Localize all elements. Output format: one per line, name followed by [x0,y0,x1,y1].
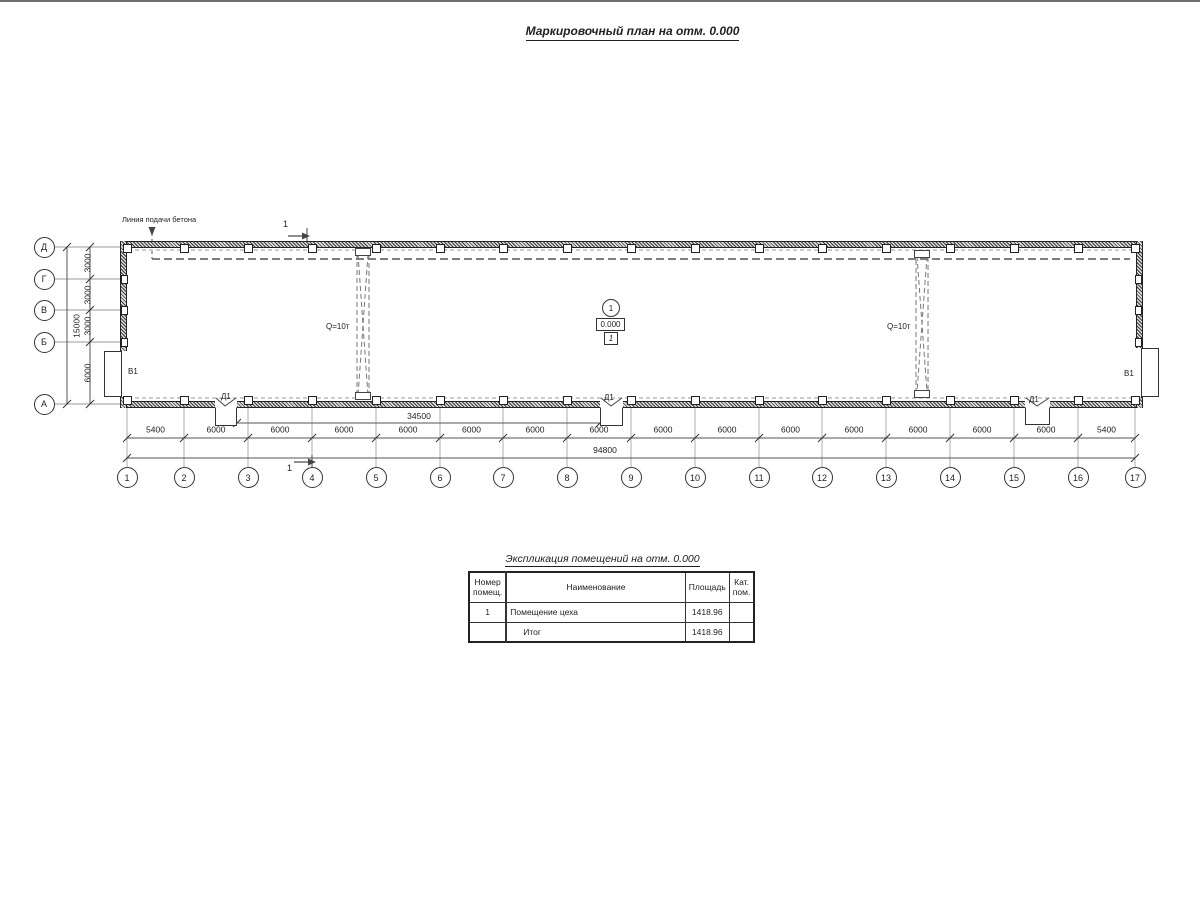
axis-bubble-Г: Г [34,269,55,290]
gate-label-right: В1 [1124,370,1134,379]
column-top [946,244,955,253]
schedule-cell-name: Помещение цеха [506,602,685,622]
dim-bottom-segment: 6000 [909,425,928,434]
dim-bottom-segment: 6000 [399,425,418,434]
axis-bubble-13: 13 [876,467,897,488]
column-top [499,244,508,253]
axis-bubble-17: 17 [1125,467,1146,488]
column-top [818,244,827,253]
column-right [1135,275,1142,284]
column-top [372,244,381,253]
column-left [121,338,128,347]
column-top [691,244,700,253]
column-bottom [180,396,189,405]
column-top [882,244,891,253]
column-top [436,244,445,253]
drawing-sheet: Маркировочный план на отм. 0.000 Линия п… [0,0,1200,900]
column-bottom [755,396,764,405]
axis-bubble-1: 1 [117,467,138,488]
dim-bottom-segment: 6000 [590,425,609,434]
room-elevation-box: 0.000 [596,318,625,331]
column-right [1135,306,1142,315]
schedule-total-row: Итог 1418.96 [469,622,754,642]
schedule-cell-category [729,602,754,622]
dim-bottom-segment: 6000 [207,425,226,434]
door-3 [1025,407,1050,425]
wall-left-seg [120,241,127,351]
dim-bottom-segment: 6000 [845,425,864,434]
column-bottom [372,396,381,405]
dim-bottom-segment: 6000 [271,425,290,434]
dim-bottom-segment: 5400 [1097,425,1116,434]
axis-bubble-5: 5 [366,467,387,488]
schedule-cell-area: 1418.96 [685,602,729,622]
crane-left-cap-top [355,248,371,256]
room-category-box: 1 [604,332,618,345]
gate-left [104,351,122,397]
dim-bottom-segment: 6000 [973,425,992,434]
room-schedule-table: Номер помещ. Наименование Площадь Кат. п… [468,571,755,643]
wall-right-seg [1136,241,1143,348]
column-top [1131,244,1140,253]
axis-bubble-11: 11 [749,467,770,488]
section-mark-bottom: 1 [287,464,292,474]
schedule-header-area: Площадь [685,572,729,602]
column-top [123,244,132,253]
column-bottom [499,396,508,405]
schedule-cell-category [729,622,754,642]
schedule-cell-area: 1418.96 [685,622,729,642]
column-top [1010,244,1019,253]
column-bottom [436,396,445,405]
dim-left-segment: 3000 [83,254,92,273]
door-1 [215,407,237,426]
crane-right-cap-top [914,250,930,258]
axis-bubble-14: 14 [940,467,961,488]
axis-bubble-7: 7 [493,467,514,488]
column-bottom [1131,396,1140,405]
dim-left-segment: 6000 [83,364,92,383]
crane-right-cap-bottom [914,390,930,398]
dim-total-bottom: 94800 [584,446,626,455]
column-top [755,244,764,253]
axis-bubble-А: А [34,394,55,415]
dim-bottom-segment: 6000 [654,425,673,434]
schedule-header-name: Наименование [506,572,685,602]
wall-bottom-seg [120,401,215,408]
dim-bottom-segment: 5400 [146,425,165,434]
column-bottom [1010,396,1019,405]
crane-capacity-label-right: Q=10т [887,323,910,332]
column-left [121,306,128,315]
column-bottom [627,396,636,405]
axis-bubble-3: 3 [238,467,259,488]
door-2 [600,407,623,426]
axis-bubble-Б: Б [34,332,55,353]
column-bottom [818,396,827,405]
axis-bubble-10: 10 [685,467,706,488]
crane-left-cap-bottom [355,392,371,400]
column-top [244,244,253,253]
schedule-header-category: Кат. пом. [729,572,754,602]
column-bottom [563,396,572,405]
door-label-1: Д1 [221,393,231,402]
column-bottom [882,396,891,405]
column-top [180,244,189,253]
schedule-cell-number [469,622,506,642]
axis-bubble-8: 8 [557,467,578,488]
door-label-3: Д1 [1029,396,1039,405]
dim-bottom-segment: 6000 [718,425,737,434]
wall-bottom-seg [1050,401,1143,408]
schedule-cell-number: 1 [469,602,506,622]
column-bottom [308,396,317,405]
axis-bubble-15: 15 [1004,467,1025,488]
axis-bubble-12: 12 [812,467,833,488]
door-label-2: Д1 [604,394,614,403]
gate-right [1141,348,1159,397]
column-bottom [1074,396,1083,405]
schedule-cell-name: Итог [506,622,685,642]
schedule-header-row: Номер помещ. Наименование Площадь Кат. п… [469,572,754,602]
section-mark-top: 1 [283,220,288,230]
column-bottom [946,396,955,405]
dim-bottom-segment: 6000 [335,425,354,434]
column-left [121,275,128,284]
dim-bottom-segment: 6000 [781,425,800,434]
schedule-title: Экспликация помещений на отм. 0.000 [420,549,785,567]
concrete-line-label: Линия подачи бетона [122,216,196,224]
dim-left-segment: 3000 [83,317,92,336]
column-right [1135,338,1142,347]
wall-bottom-seg [237,401,600,408]
schedule-row: 1 Помещение цеха 1418.96 [469,602,754,622]
dim-left-segment: 3000 [83,285,92,304]
dim-bottom-segment: 6000 [526,425,545,434]
axis-bubble-6: 6 [430,467,451,488]
axis-bubble-Д: Д [34,237,55,258]
column-bottom [691,396,700,405]
dim-bottom-segment: 6000 [462,425,481,434]
column-bottom [123,396,132,405]
dim-bottom-segment: 6000 [1037,425,1056,434]
column-top [627,244,636,253]
axis-bubble-4: 4 [302,467,323,488]
axis-bubble-В: В [34,300,55,321]
axis-bubble-2: 2 [174,467,195,488]
axis-bubble-16: 16 [1068,467,1089,488]
crane-capacity-label-left: Q=10т [326,323,349,332]
column-top [563,244,572,253]
schedule-header-number: Номер помещ. [469,572,506,602]
column-top [308,244,317,253]
column-top [1074,244,1083,253]
gate-label-left: В1 [128,368,138,377]
axis-bubble-9: 9 [621,467,642,488]
dim-door-span: 34500 [398,412,440,421]
column-bottom [244,396,253,405]
dim-total-left: 15000 [72,314,81,338]
room-number-bubble: 1 [602,299,620,317]
